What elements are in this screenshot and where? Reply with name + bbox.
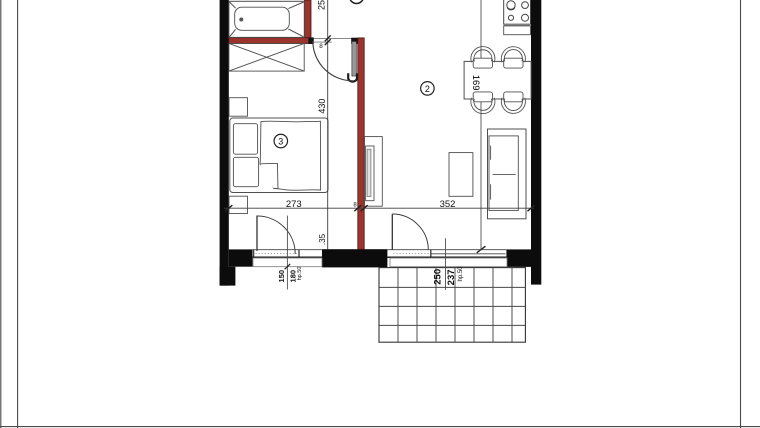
svg-text:169: 169 [470,75,481,91]
svg-text:430: 430 [317,99,327,114]
svg-text:253: 253 [316,0,326,10]
svg-text:hp.50: hp.50 [458,266,464,282]
svg-text:2: 2 [425,84,430,94]
svg-text:8: 8 [319,43,323,50]
svg-text:237: 237 [446,269,457,285]
svg-text:273: 273 [286,199,302,210]
svg-text:3: 3 [278,136,283,146]
svg-text:250: 250 [433,269,444,285]
svg-text:150: 150 [277,270,286,283]
svg-text:352: 352 [440,199,456,210]
svg-text:.35: .35 [318,233,327,245]
svg-text:hp.50: hp.50 [297,267,303,281]
